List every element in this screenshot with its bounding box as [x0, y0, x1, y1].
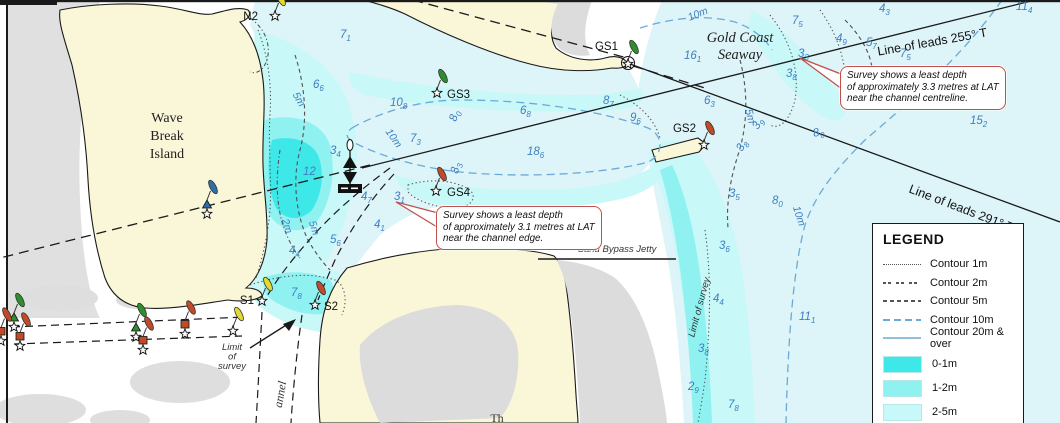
callout-line: Survey shows a least depth	[443, 210, 595, 222]
label-the-partial: Th	[490, 411, 503, 423]
label-channel-name-partial: annel	[271, 379, 290, 408]
legend-swatch-label: 1-2m	[932, 382, 957, 394]
legend-item-label: Contour 10m	[930, 314, 994, 326]
legend-line-sample	[883, 282, 921, 284]
legend: LEGEND Contour 1mContour 2mContour 5mCon…	[872, 223, 1024, 423]
legend-contour-items: Contour 1mContour 2mContour 5mContour 10…	[883, 255, 1015, 348]
legend-depth-swatch	[883, 356, 922, 373]
callout-line: of approximately 3.3 metres at LAT	[847, 82, 999, 94]
legend-title: LEGEND	[883, 231, 1015, 247]
callout-edge: Survey shows a least depth of approximat…	[436, 206, 602, 250]
marker-beacon-w4-yellow	[228, 306, 245, 335]
legend-item-label: Contour 1m	[930, 258, 987, 270]
legend-swatch-row: 2-5m	[883, 405, 1015, 420]
legend-item-contour-20m-over: Contour 20m & over	[883, 329, 1015, 348]
marker-label-GS2: GS2	[673, 123, 696, 135]
legend-swatch-label: 0-1m	[932, 358, 957, 370]
legend-line-sample	[883, 319, 921, 321]
callout-line: of approximately 3.1 metres at LAT	[443, 222, 595, 234]
legend-line-sample	[883, 264, 921, 265]
marker-label-S2: S2	[324, 301, 338, 313]
legend-item-contour-2m: Contour 2m	[883, 274, 1015, 293]
marker-label-GS4: GS4	[447, 187, 471, 199]
legend-item-label: Contour 20m & over	[930, 326, 1015, 350]
legend-item-label: Contour 2m	[930, 277, 987, 289]
marker-beacon-w2-red	[138, 315, 155, 354]
marker-label-GS1: GS1	[595, 41, 618, 53]
callout-line: Survey shows a least depth	[847, 70, 999, 82]
nautical-chart: 7166108341273806887961868316163754349573…	[0, 0, 1060, 423]
legend-depth-swatches: 0-1m1-2m2-5m	[883, 357, 1015, 423]
label-limit-of-survey-west: Limitofsurvey	[218, 342, 247, 372]
legend-item-label: Contour 5m	[930, 295, 987, 307]
legend-depth-swatch	[883, 380, 922, 397]
marker-label-GS3: GS3	[447, 89, 470, 101]
legend-item-contour-5m: Contour 5m	[883, 292, 1015, 311]
marker-label-N2: N2	[243, 11, 258, 23]
callout-line: near the channel edge.	[443, 233, 595, 245]
region-label-wave-break-island: WaveBreakIsland	[150, 111, 184, 162]
marker-label-S1: S1	[240, 295, 254, 307]
legend-line-sample	[883, 337, 921, 339]
legend-swatch-row: 0-1m	[883, 357, 1015, 372]
sounding: 12	[303, 166, 316, 178]
callout-centreline: Survey shows a least depth of approximat…	[840, 66, 1006, 110]
callout-line: near the channel centreline.	[847, 93, 999, 105]
legend-line-sample	[883, 300, 921, 302]
legend-swatch-label: 2-5m	[932, 406, 957, 418]
legend-item-contour-1m: Contour 1m	[883, 255, 1015, 274]
legend-depth-swatch	[883, 404, 922, 421]
legend-swatch-row: 1-2m	[883, 381, 1015, 396]
